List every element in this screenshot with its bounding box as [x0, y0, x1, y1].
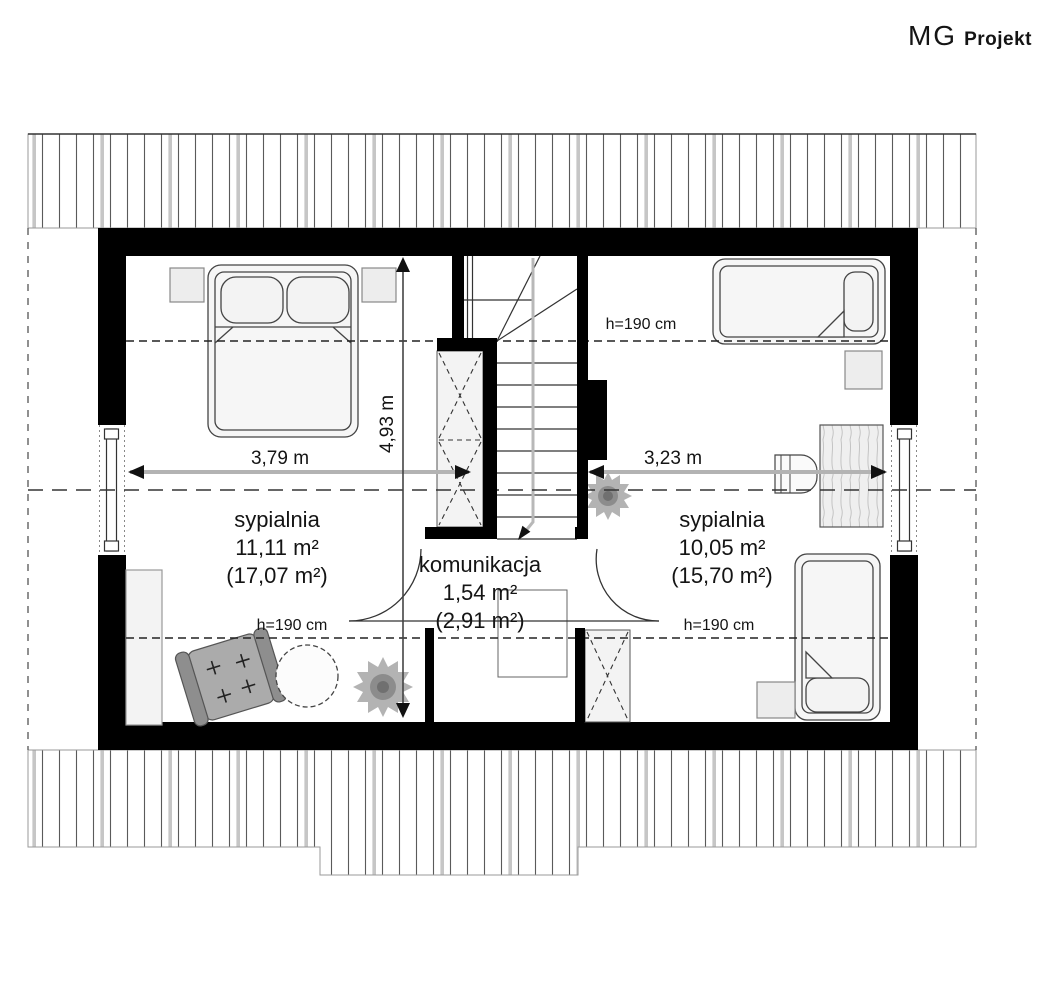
single-bed-bottom-icon [795, 554, 880, 720]
dimension-label-right-width: 3,23 m [644, 448, 702, 470]
room-area: 11,11 m² [226, 534, 327, 562]
nightstand-icon [362, 268, 396, 302]
nightstand-icon [757, 682, 795, 718]
room-name: sypialnia [226, 506, 327, 534]
room-name: komunikacja [419, 551, 541, 579]
room-label-bedroom-right: sypialnia 10,05 m² (15,70 m²) [671, 506, 772, 590]
room-label-hall: komunikacja 1,54 m² (2,91 m²) [419, 551, 541, 635]
nightstand-icon [170, 268, 204, 302]
brand-logo-projekt: Projekt [964, 29, 1032, 51]
room-area: 10,05 m² [671, 534, 772, 562]
plant-icon [584, 472, 632, 520]
room-area: 1,54 m² [419, 579, 541, 607]
nightstand-icon [845, 351, 882, 389]
room-floor-area: (15,70 m²) [671, 562, 772, 590]
roof-band-bottom [28, 750, 976, 875]
height-label-bottom-left: h=190 cm [257, 617, 328, 635]
height-label-bottom-right: h=190 cm [684, 617, 755, 635]
room-name: sypialnia [671, 506, 772, 534]
room-floor-area: (17,07 m²) [226, 562, 327, 590]
double-bed-icon [208, 265, 358, 437]
roof-band-top [28, 134, 976, 228]
floor-plan-drawing [0, 0, 1050, 999]
brand-logo: MG Projekt [908, 20, 1032, 52]
armchair-icon [174, 627, 288, 728]
chimney [585, 380, 607, 460]
dimension-arrow-depth [396, 257, 410, 718]
round-table-icon [276, 645, 338, 707]
dimension-label-depth: 4,93 m [377, 395, 399, 453]
floor-plan-page: MG Projekt sypialnia 11,11 m² (17,07 m²)… [0, 0, 1050, 999]
wardrobe-hall-icon [585, 630, 630, 722]
room-floor-area: (2,91 m²) [419, 607, 541, 635]
brand-logo-mg: MG [908, 20, 957, 52]
closet-icon [126, 570, 162, 725]
room-label-bedroom-left: sypialnia 11,11 m² (17,07 m²) [226, 506, 327, 590]
wardrobe-stair-icon [437, 351, 483, 527]
single-bed-top-icon [713, 259, 885, 344]
height-label-top: h=190 cm [606, 316, 677, 334]
dimension-label-left-width: 3,79 m [251, 448, 309, 470]
